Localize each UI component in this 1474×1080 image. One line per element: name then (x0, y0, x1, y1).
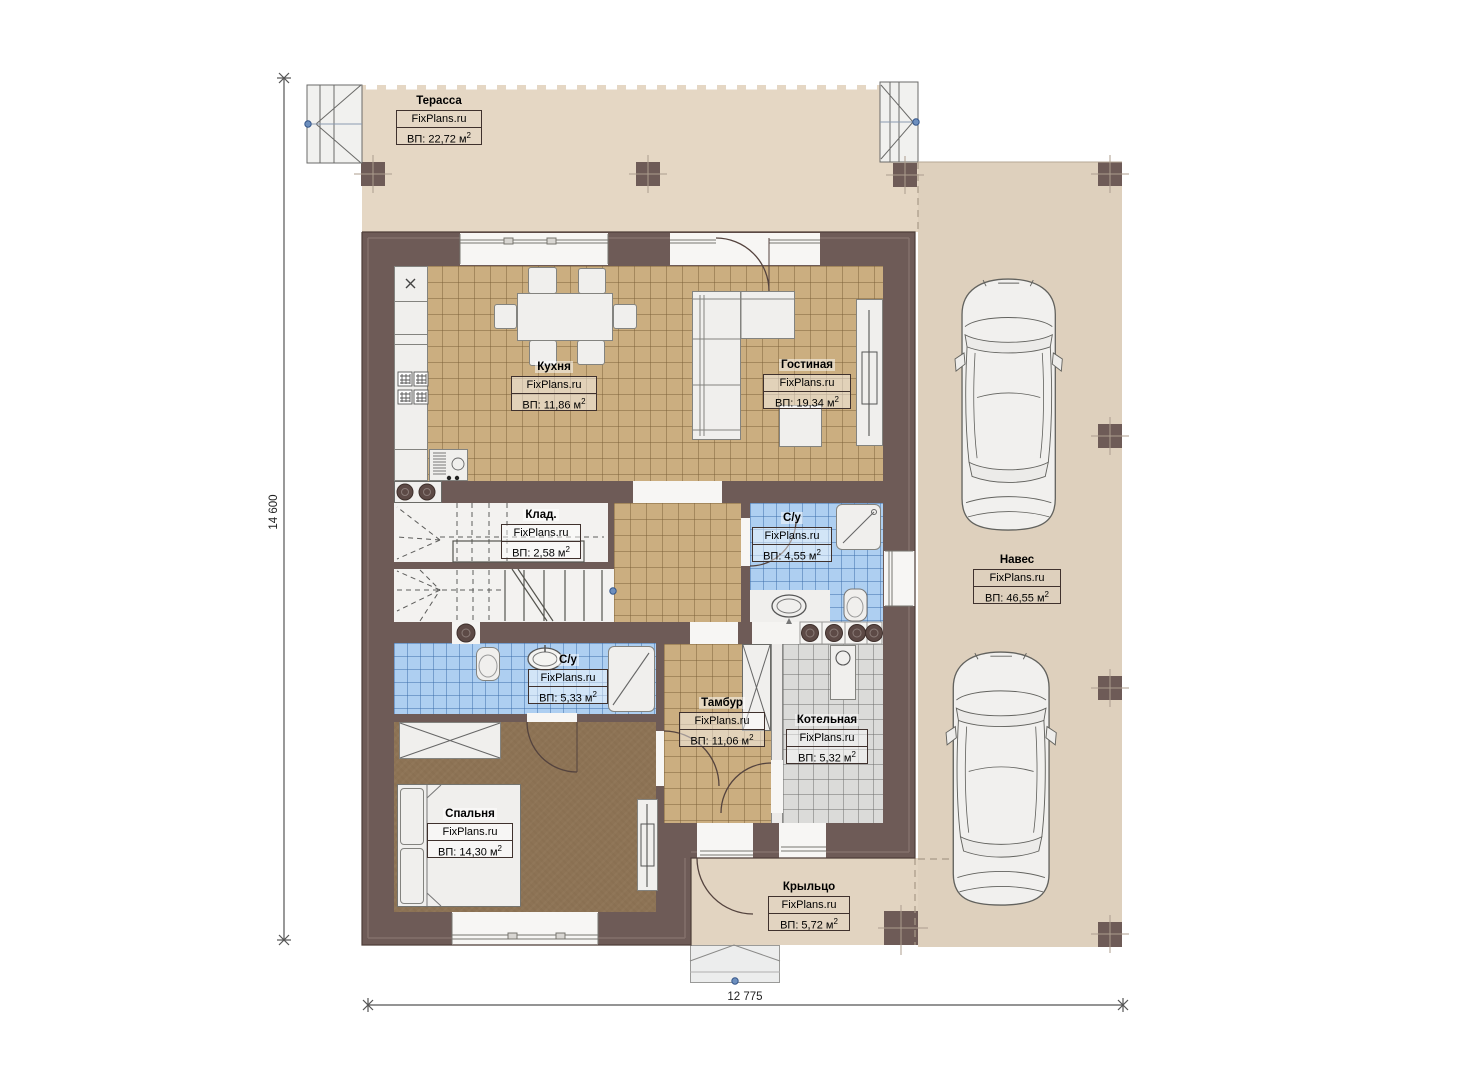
svg-text:14 600: 14 600 (268, 494, 280, 529)
svg-text:12 775: 12 775 (727, 991, 762, 1003)
